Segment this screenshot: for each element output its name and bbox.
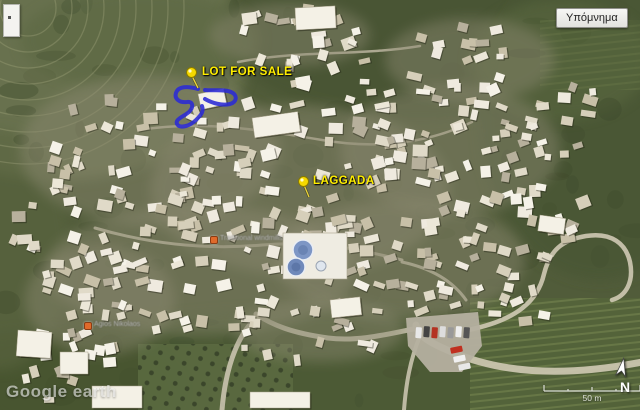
placemark-label-laggada[interactable]: LAGGADA — [313, 175, 375, 187]
pushpin-laggada[interactable] — [297, 175, 313, 199]
satellite-map[interactable] — [0, 0, 640, 410]
north-label: N — [620, 379, 630, 395]
pushpin-lot-for-sale[interactable] — [185, 66, 201, 90]
google-earth-viewport: LOT FOR SALE LAGGADA Traditional windmil… — [0, 0, 640, 410]
photo-icon — [84, 322, 92, 330]
legend-button[interactable]: Υπόμνημα — [556, 8, 628, 28]
collapsed-side-panel[interactable] — [3, 4, 20, 37]
panel-handle-icon — [8, 16, 11, 19]
photo-caption: Agios Nikolaos — [94, 321, 140, 328]
google-earth-watermark: Google earth — [6, 382, 117, 402]
placemark-label-lot-for-sale[interactable]: LOT FOR SALE — [202, 66, 292, 78]
scale-label: 50 m — [583, 393, 602, 403]
photo-icon — [210, 236, 218, 244]
north-arrow: N — [608, 356, 636, 400]
photo-caption: Traditional windmills — [220, 235, 283, 242]
